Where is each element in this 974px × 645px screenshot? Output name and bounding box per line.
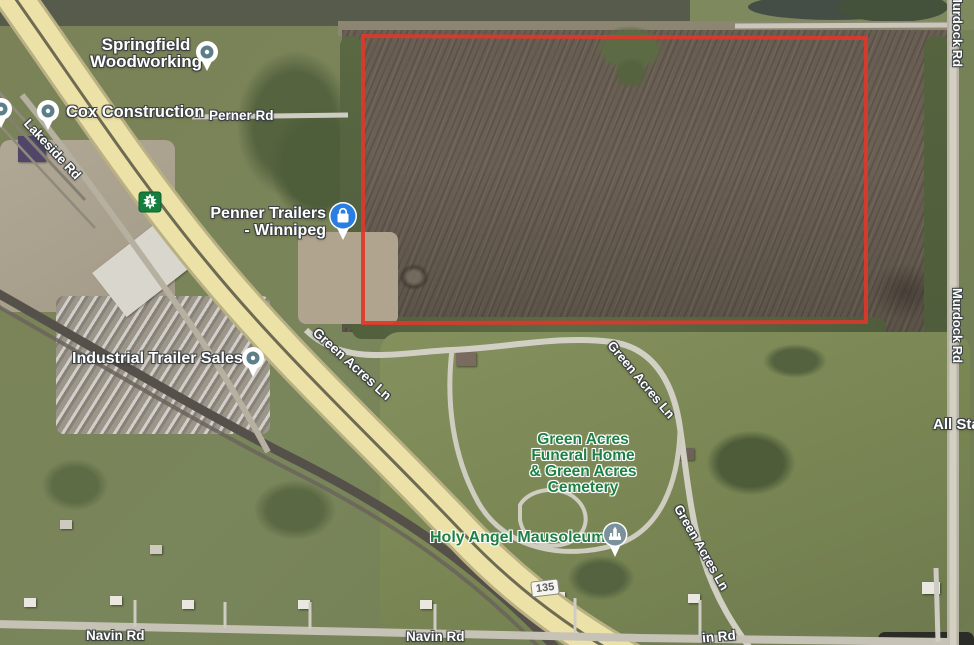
poi-dot-center <box>251 356 255 360</box>
funeral-line2: Funeral Home <box>531 447 634 464</box>
driveway-east <box>936 568 938 642</box>
poi-dot-center <box>205 50 209 54</box>
top-right-road <box>735 25 952 26</box>
poi-label-holy-angel-mausoleum[interactable]: Holy Angel Mausoleum <box>430 529 605 547</box>
funeral-line3: & Green Acres <box>529 463 636 480</box>
penner-line1: Penner Trailers <box>210 205 326 222</box>
highway-1-number: 1 <box>147 197 152 207</box>
springfield-line2: Woodworking <box>90 52 202 71</box>
funeral-line1: Green Acres <box>537 431 629 448</box>
road-label-murdock-top: Murdock Rd <box>950 0 965 67</box>
satellite-map[interactable]: 1 135 Perner Rd Lakeside Rd Green Acres … <box>0 0 974 645</box>
funeral-line4: Cemetery <box>548 479 619 496</box>
trans-canada-1-shield: 1 <box>138 190 162 219</box>
road-label-perner: Perner Rd <box>209 108 274 123</box>
road-label-navin-east: in Rd <box>701 628 736 645</box>
road-label-navin-west: Navin Rd <box>86 628 145 643</box>
road-label-murdock-mid: Murdock Rd <box>950 288 965 363</box>
poi-label-cox-construction[interactable]: Cox Construction <box>66 104 204 121</box>
penner-line2: - Winnipeg <box>244 222 326 239</box>
poi-dot-center <box>46 109 50 113</box>
roads-layer <box>0 0 974 645</box>
highway-135-shield: 135 <box>530 578 560 597</box>
poi-label-all-star[interactable]: All Sta <box>933 416 974 433</box>
poi-label-green-acres-funeral-home[interactable]: Green Acres Funeral Home & Green Acres C… <box>508 432 658 496</box>
poi-label-industrial-trailer-sales[interactable]: Industrial Trailer Sales <box>72 350 243 367</box>
poi-label-penner-trailers[interactable]: Penner Trailers - Winnipeg <box>206 205 326 239</box>
road-label-navin-center: Navin Rd <box>406 629 465 644</box>
property-boundary <box>363 36 866 323</box>
shopping-bag-icon <box>338 214 349 223</box>
highway-135-number: 135 <box>535 581 555 595</box>
